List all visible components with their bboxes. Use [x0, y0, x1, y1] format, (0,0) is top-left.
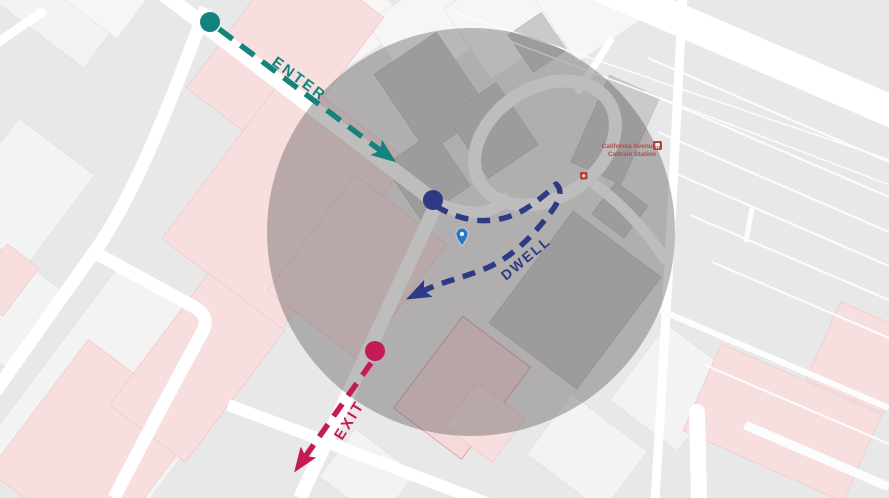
- station-label-line1: California Avenue: [602, 143, 657, 150]
- exit-start-dot: [365, 341, 385, 361]
- map-screenshot: California Avenue Caltrain Station ENTER…: [0, 0, 889, 498]
- enter-start-dot: [200, 12, 220, 32]
- station-icon[interactable]: [653, 141, 662, 150]
- map-canvas[interactable]: California Avenue Caltrain Station ENTER…: [0, 0, 889, 498]
- road: [697, 412, 699, 498]
- station-dot-icon[interactable]: [580, 172, 588, 180]
- station-label-line2: Caltrain Station: [608, 151, 656, 158]
